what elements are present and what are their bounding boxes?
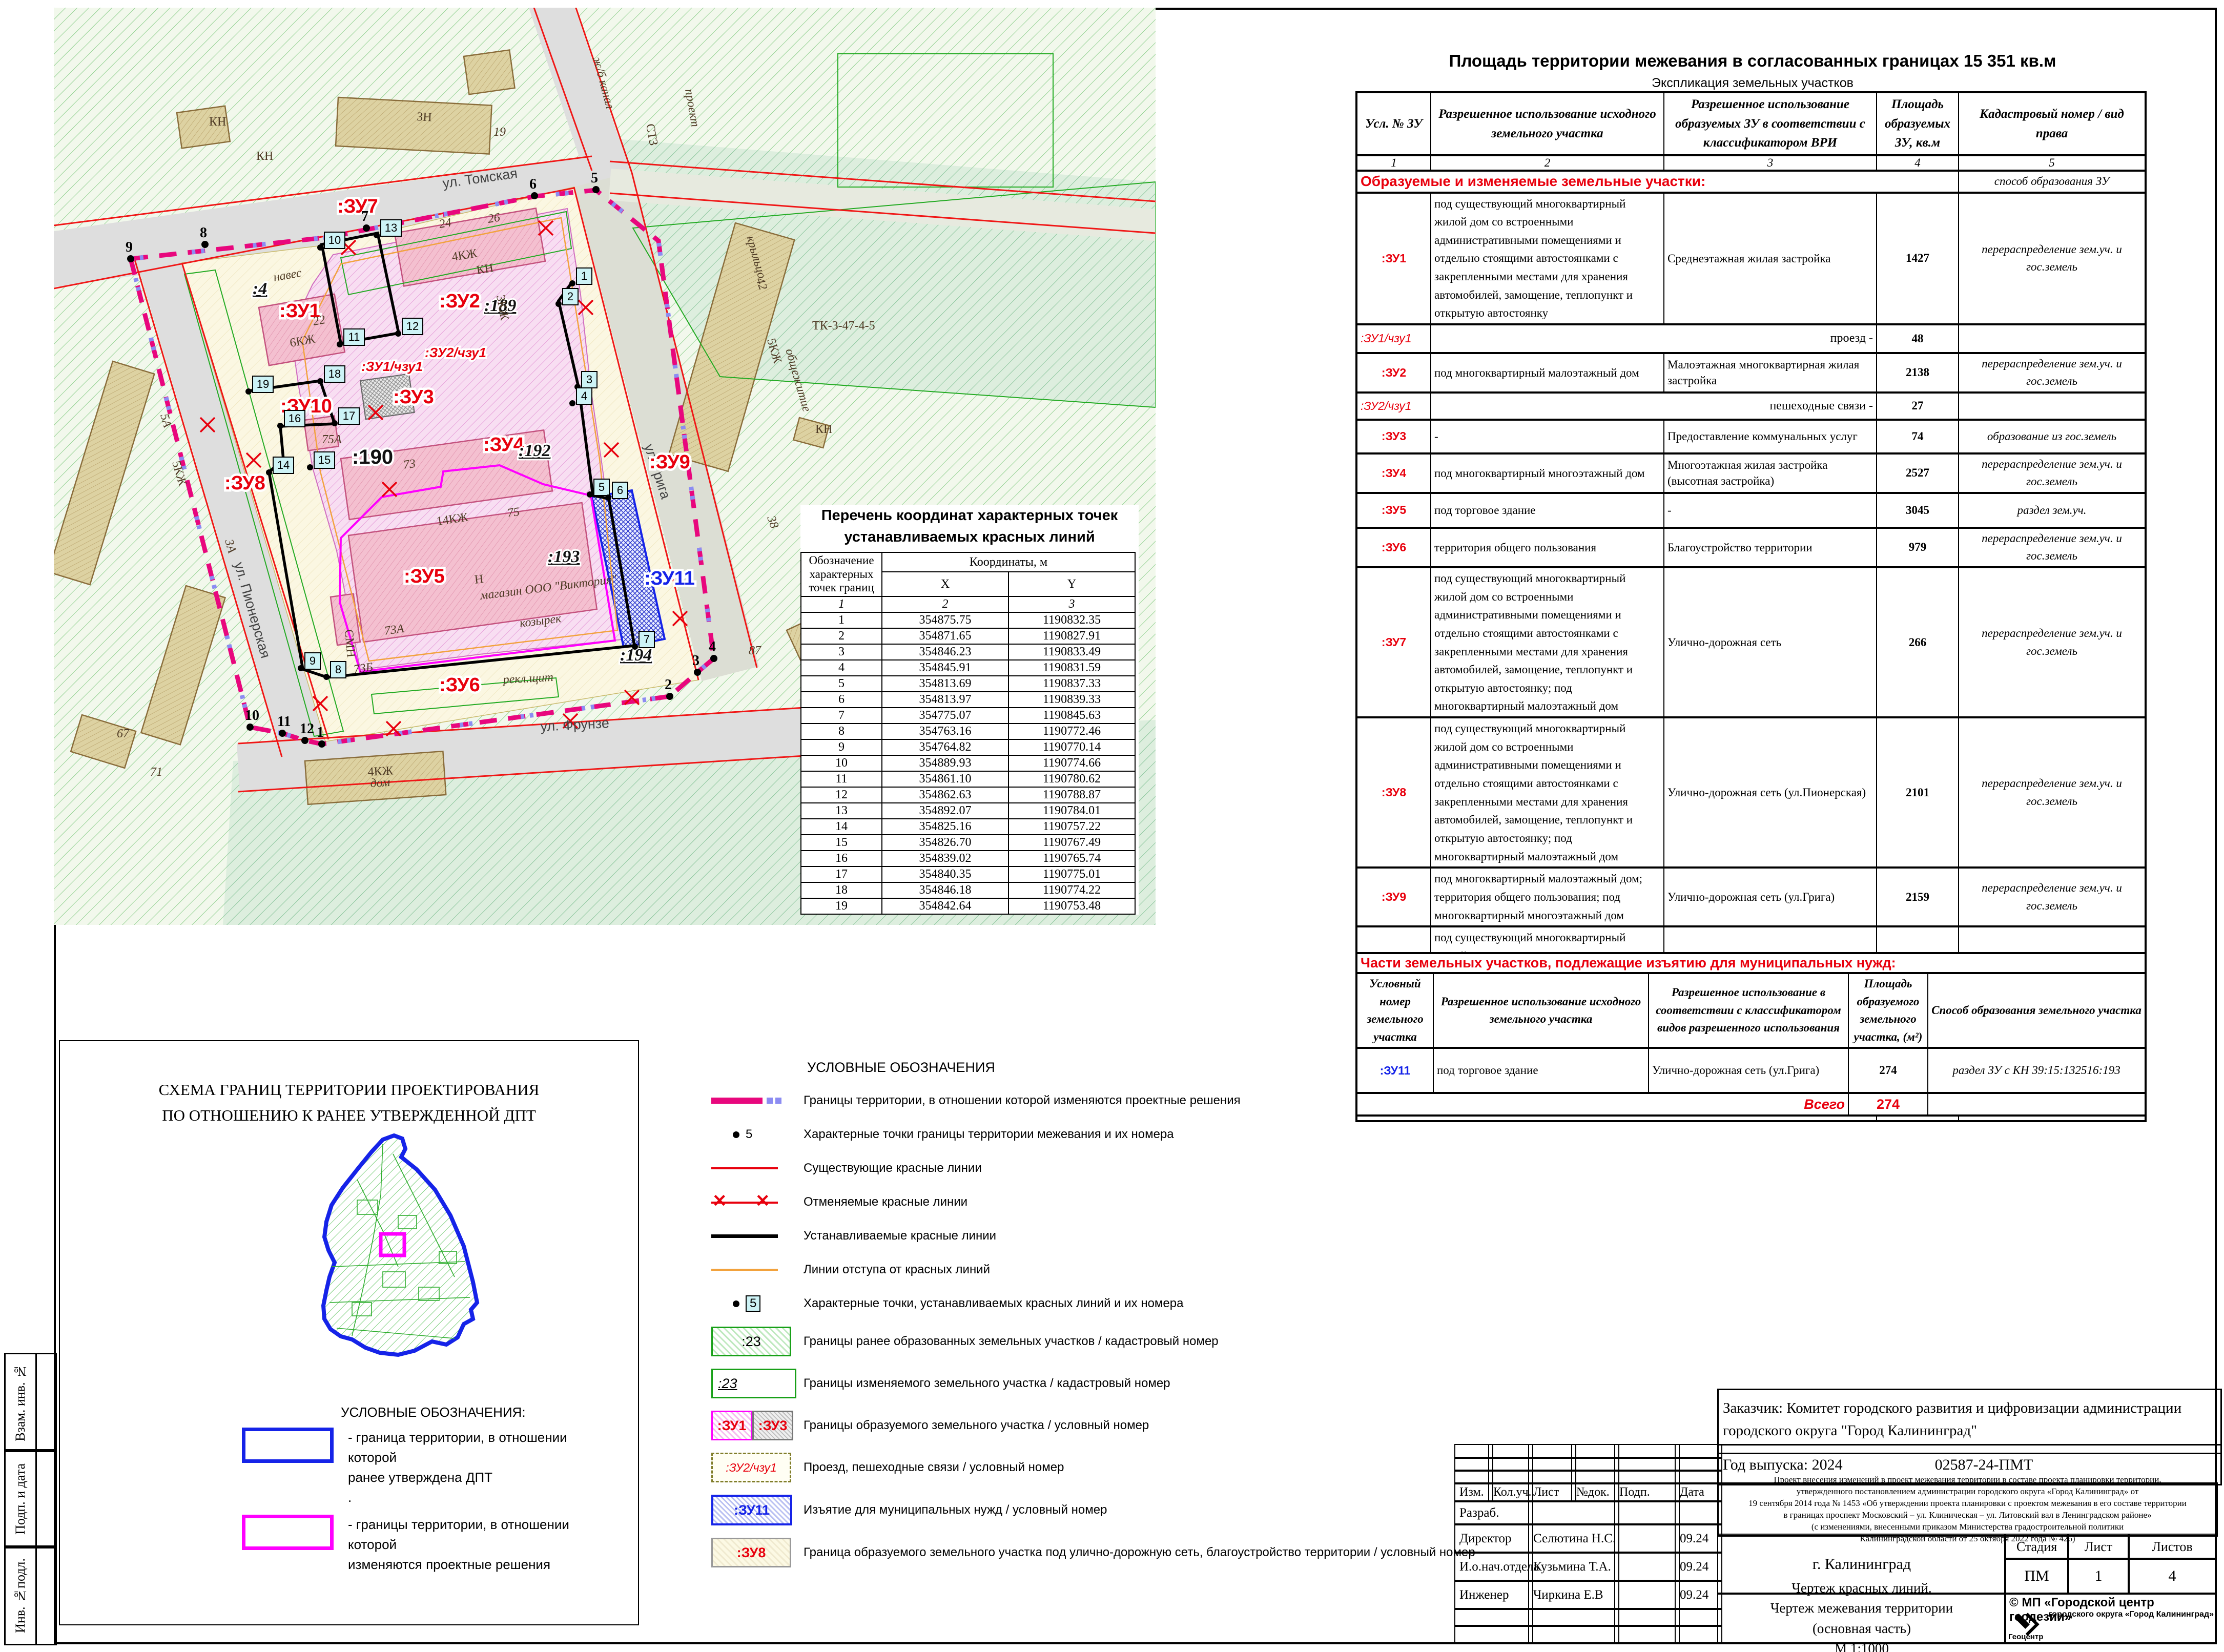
svg-text:5: 5 [591, 170, 598, 186]
coords-table: Обозначение характерных точек границКоор… [800, 552, 1136, 915]
expl-colnum-row: 12345 [1356, 155, 2146, 171]
stamp-empty-cell [1675, 1608, 1722, 1627]
expl-header-4: Площадь образуемых ЗУ, кв.м [1877, 92, 1959, 155]
legend-item-text: Проезд, пешеходные связи / условный номе… [804, 1460, 1064, 1475]
expl-row-ЗУ2: :ЗУ2под многоквартирный малоэтажный домМ… [1356, 353, 2146, 393]
schema-dot: . [348, 1490, 352, 1505]
expl-header-5: Кадастровый номер / вид права [1959, 92, 2146, 155]
svg-text:13: 13 [385, 221, 397, 234]
map-label: :ЗУ3 [393, 386, 434, 408]
svg-text:3: 3 [692, 653, 699, 669]
map-label: 67 [117, 727, 130, 740]
legend-item-yellowbox: :ЗУ8Граница образуемого земельного участ… [711, 1538, 1552, 1567]
map-label: 75А [322, 433, 342, 446]
person-role: Директор [1454, 1523, 1533, 1554]
map-label: ТК-3-47-4-5 [812, 319, 875, 333]
seiz-title-row: Части земельных участков, подлежащие изъ… [1356, 953, 2146, 973]
svg-text:11: 11 [277, 714, 291, 730]
svg-text:19: 19 [257, 378, 269, 390]
svg-text:15: 15 [318, 453, 331, 466]
blackline-icon [711, 1234, 804, 1238]
coords-title-1: Перечень координат характерных точек [821, 507, 1118, 524]
svg-text:1: 1 [317, 725, 324, 740]
legend-item-text: Границы образуемого земельного участка /… [804, 1418, 1149, 1433]
schema-swatch-blue [242, 1428, 334, 1463]
stamp-col-4: №док. [1571, 1482, 1619, 1502]
map-label: :190 [352, 446, 393, 468]
coord-point-1: 1354875.751190832.35 [801, 612, 1135, 628]
org-line2: городского округа «Город Калининград» [2049, 1610, 2214, 1619]
map-label: СМН [342, 629, 358, 658]
svg-text:17: 17 [343, 409, 355, 422]
chzubox-icon: :ЗУ2/чзу1 [711, 1453, 804, 1482]
coord-point-18: 18354846.181190774.22 [801, 882, 1135, 898]
map-label: рекл.щит [502, 671, 554, 687]
svg-text:2: 2 [567, 290, 573, 303]
map-label: :ЗУ9 [649, 451, 690, 473]
map-label: 75 [506, 505, 520, 520]
map-label: КН [815, 423, 832, 436]
sidebar-inv: Инв. №подл. [4, 1545, 57, 1645]
legend-item-text: Границы изменяемого земельного участка /… [804, 1376, 1170, 1391]
map-label: :192 [519, 441, 550, 460]
person-date: 09.24 [1675, 1580, 1722, 1610]
expl-subtitle: Экспликация земельных участков [1358, 76, 2147, 91]
legend-item-zupair: :ЗУ1:ЗУ3Границы образуемого земельного у… [711, 1411, 1552, 1440]
svg-text:9: 9 [310, 654, 316, 667]
person-date [1675, 1500, 1722, 1525]
gbox-icon: :23 [711, 1369, 804, 1398]
svg-text:8: 8 [200, 225, 207, 241]
map-label: 22 [312, 313, 326, 328]
svg-text:12: 12 [406, 320, 419, 333]
expl-row-ЗУ6: :ЗУ6территория общего пользованияБлагоус… [1356, 528, 2146, 567]
schema-legend-title: УСЛОВНЫЕ ОБОЗНАЧЕНИЯ: [341, 1402, 611, 1422]
legend-item-redx: ✕✕Отменяемые красные линии [711, 1191, 1552, 1213]
coords-block: Перечень координат характерных точек уст… [800, 505, 1139, 915]
legend-item-text: Границы ранее образованных земельных уча… [804, 1334, 1219, 1349]
svg-text:3: 3 [586, 373, 592, 386]
expl-row-ЗУ2чзу1: :ЗУ2/чзу1пешеходные связи -27 [1356, 393, 2146, 420]
svg-text:1: 1 [581, 270, 587, 282]
orangeline-icon [711, 1269, 804, 1271]
map-label: КН [209, 115, 226, 129]
coord-point-4: 4354845.911190831.59 [801, 660, 1135, 676]
map-label: :ЗУ2/чзу1 [425, 345, 486, 360]
stamp-col-1: Изм. [1454, 1482, 1493, 1502]
ptcyan-icon: 5 [711, 1295, 804, 1312]
person-role: Разраб. [1454, 1500, 1533, 1525]
svg-text:16: 16 [289, 412, 301, 425]
sheet-label-cell: Лист [2067, 1534, 2130, 1560]
legend-item-pt: 5Характерные точки границы территории ме… [711, 1124, 1552, 1145]
map-label: :ЗУ7 [337, 196, 378, 217]
legend-item-text: Линии отступа от красных линий [804, 1263, 990, 1277]
map-label: КН [476, 261, 495, 277]
svg-text:4: 4 [581, 389, 587, 402]
person-date: 09.24 [1675, 1523, 1722, 1554]
city: г. Калининград [1813, 1556, 1911, 1573]
stage-label-cell: Стадия [2004, 1534, 2069, 1560]
coord-point-9: 9354764.821190770.14 [801, 739, 1135, 755]
schema-item1-line2: ранее утверждена ДПТ [348, 1470, 492, 1485]
coord-point-7: 7354775.071190845.63 [801, 708, 1135, 724]
person-name: Чиркина Е.В [1528, 1580, 1619, 1610]
customer-line1: Заказчик: Комитет городского развития и … [1723, 1400, 2181, 1416]
map-label: 19 [493, 126, 506, 139]
redx-icon: ✕✕ [711, 1194, 804, 1210]
year-label: Год выпуска: 2024 [1723, 1456, 1843, 1474]
expl-row-ЗУ7: :ЗУ7под существующий многоквартирный жил… [1356, 567, 2146, 717]
map-label: :ЗУ1/чзу1 [361, 359, 423, 374]
yellowbox-icon: :ЗУ8 [711, 1538, 804, 1567]
bluebox-icon: :ЗУ11 [711, 1495, 804, 1525]
expl-header-row: Усл. № ЗУРазрешенное использование исход… [1356, 92, 2146, 155]
coord-point-16: 16354839.021190765.74 [801, 851, 1135, 866]
svg-text:4: 4 [709, 639, 716, 655]
zupair-icon: :ЗУ1:ЗУ3 [711, 1411, 804, 1440]
person-name [1528, 1500, 1619, 1525]
map-label: 73А [383, 622, 405, 638]
svg-text:6: 6 [529, 176, 537, 192]
map-label: 26 [487, 211, 501, 225]
legend-item-text: Устанавливаемые красные линии [804, 1229, 996, 1243]
legend-item-redline: Существующие красные линии [711, 1158, 1552, 1179]
svg-text:10: 10 [328, 234, 341, 246]
legend-item-text: Существующие красные линии [804, 1161, 982, 1175]
legend-item-ghatch: :23Границы ранее образованных земельных … [711, 1327, 1552, 1356]
coord-point-17: 17354840.351190775.01 [801, 866, 1135, 882]
expl-row-ЗУ5: :ЗУ5под торговое здание-3045раздел зем.у… [1356, 493, 2146, 528]
map-label: :4 [253, 279, 267, 298]
coord-point-13: 13354892.071190784.01 [801, 803, 1135, 819]
schema-panel: СХЕМА ГРАНИЦ ТЕРРИТОРИИ ПРОЕКТИРОВАНИЯ П… [59, 1040, 639, 1625]
expl-row-ЗУ8: :ЗУ8под существующий многоквартирный жил… [1356, 717, 2146, 868]
stamp-empty-cell [1614, 1625, 1680, 1644]
svg-text:18: 18 [328, 367, 341, 380]
stamp-col-2: Кол.уч. [1488, 1482, 1533, 1502]
coord-header-row1: Обозначение характерных точек границКоор… [801, 552, 1135, 572]
map-label: ЗН [417, 110, 433, 125]
legend-item-text: Отменяемые красные линии [804, 1195, 967, 1209]
sheet: ул. Томскаяул. Пионерскаяул. Григаул. Фр… [0, 0, 2224, 1652]
stamp-col-5: Подп. [1614, 1482, 1680, 1502]
coord-colnum-row: 123 [801, 596, 1135, 612]
sheet-value-cell: 1 [2067, 1558, 2130, 1595]
svg-text:6: 6 [617, 484, 623, 497]
person-date: 09.24 [1675, 1552, 1722, 1582]
sidebar-vzam: Взам. инв. № [4, 1353, 57, 1452]
stamp-col-3: Лист [1528, 1482, 1576, 1502]
person-role: И.о.нач.отдела [1454, 1552, 1533, 1582]
svg-text:7: 7 [361, 209, 368, 224]
magdash-icon [711, 1098, 804, 1104]
person-signature [1614, 1523, 1680, 1554]
seiz-header-row: Условный номер земельного участкаРазреше… [1356, 973, 2146, 1048]
coord-point-5: 5354813.691190837.33 [801, 676, 1135, 692]
map-label: :ЗУ6 [439, 674, 480, 696]
map-label: 73 [402, 457, 416, 472]
svg-text:14: 14 [277, 459, 290, 471]
coord-point-2: 2354871.651190827.91 [801, 628, 1135, 644]
schema-title-2: ПО ОТНОШЕНИЮ К РАНЕЕ УТВЕРЖДЕННОЙ ДПТ [162, 1106, 536, 1124]
sheets-value-cell: 4 [2128, 1558, 2217, 1595]
svg-text:10: 10 [245, 708, 259, 724]
map-label: :ЗУ4 [483, 434, 524, 456]
person-signature [1614, 1580, 1680, 1610]
expl-row-ЗУ9: :ЗУ9под многоквартирный малоэтажный дом;… [1356, 868, 2146, 926]
svg-text:9: 9 [126, 239, 133, 255]
coord-point-19: 19354842.641190753.48 [801, 898, 1135, 914]
person-name: Селютина Н.С. [1528, 1523, 1619, 1554]
legend-item-text: Изъятие для муниципальных нужд / условны… [804, 1503, 1107, 1517]
legend-item-orangeline: Линии отступа от красных линий [711, 1259, 1552, 1281]
logo-caption: Геоцентр [2008, 1633, 2043, 1641]
stamp-empty-cell [1614, 1608, 1680, 1627]
expl-row-ЗУ4: :ЗУ4под многоквартирный многоэтажный дом… [1356, 453, 2146, 493]
redline-icon [711, 1167, 804, 1169]
expl-header-1: Усл. № ЗУ [1356, 92, 1431, 155]
map-label: КН [256, 150, 273, 163]
svg-text:2: 2 [665, 677, 672, 693]
coord-point-10: 10354889.931190774.66 [801, 755, 1135, 771]
svg-text:11: 11 [348, 331, 360, 343]
map-label: Н [474, 572, 484, 587]
person-role: Инженер [1454, 1580, 1533, 1610]
stamp-empty-cell [1675, 1625, 1722, 1644]
stamp-empty-cell [1454, 1625, 1533, 1644]
coord-point-11: 11354861.101190780.62 [801, 771, 1135, 787]
person-signature [1614, 1500, 1680, 1525]
coord-point-3: 3354846.231190833.49 [801, 644, 1135, 660]
legend-title: УСЛОВНЫЕ ОБОЗНАЧЕНИЯ [807, 1060, 1552, 1076]
stage-value-cell: ПМ [2004, 1558, 2069, 1595]
pt-icon: 5 [711, 1127, 804, 1142]
map-label: 87 [749, 644, 761, 657]
schema-map [229, 1133, 516, 1400]
stamp-empty-cell [1528, 1625, 1619, 1644]
doc-number: 02587-24-ПМТ [1935, 1456, 2033, 1474]
schema-item1-line1: - граница территории, в отношении которо… [348, 1430, 567, 1465]
coords-title-2: устанавливаемых красных линий [844, 529, 1095, 545]
expl-section-row: Образуемые и изменяемые земельные участк… [1356, 171, 2146, 193]
map-label: :ЗУ8 [224, 472, 265, 494]
schema-swatch-magenta [242, 1515, 334, 1550]
legend-item-bluebox: :ЗУ11Изъятие для муниципальных нужд / ус… [711, 1495, 1552, 1525]
legend-item-ptcyan: 5Характерные точки, устанавливаемых крас… [711, 1293, 1552, 1314]
map-label: 73Б [353, 660, 374, 676]
legend-item-text: Характерные точки, устанавливаемых красн… [804, 1296, 1183, 1311]
coord-point-12: 12354862.631190788.87 [801, 787, 1135, 803]
legend-item-chzubox: :ЗУ2/чзу1Проезд, пешеходные связи / усло… [711, 1453, 1552, 1482]
coord-point-8: 8354763.161190772.46 [801, 724, 1135, 739]
coord-point-14: 14354825.161190757.22 [801, 819, 1135, 835]
expl-header-3: Разрешенное использование образуемых ЗУ … [1664, 92, 1877, 155]
map-label: :ЗУ2 [439, 291, 480, 312]
ghatch-icon: :23 [711, 1327, 804, 1356]
svg-text:7: 7 [644, 633, 650, 646]
person-name: Кузьмина Т.А. [1528, 1552, 1619, 1582]
svg-text:5: 5 [599, 481, 605, 493]
svg-text:8: 8 [335, 663, 341, 676]
stamp-empty-cell [1454, 1608, 1533, 1627]
svg-text:12: 12 [300, 721, 314, 737]
expl-row-ЗУ1: :ЗУ1под существующий многоквартирный жил… [1356, 193, 2146, 324]
map-label: :ЗУ11 [644, 568, 695, 589]
schema-item2-line2: изменяются проектные решения [348, 1557, 550, 1572]
legend-item-gbox: :23Границы изменяемого земельного участк… [711, 1369, 1552, 1398]
schema-item2-line1: - границы территории, в отношении которо… [348, 1517, 569, 1552]
map-label: 24 [438, 216, 452, 231]
legend-item-blackline: Устанавливаемые красные линии [711, 1225, 1552, 1247]
sidebar-podp: Подп. и дата [4, 1449, 57, 1548]
sheets-label-cell: Листов [2128, 1534, 2217, 1560]
legend-item-text: Характерные точки границы территории меж… [804, 1127, 1174, 1142]
schema-title-1: СХЕМА ГРАНИЦ ТЕРРИТОРИИ ПРОЕКТИРОВАНИЯ [159, 1081, 540, 1099]
drawing-name: Чертеж красных линий.Чертеж межевания те… [1770, 1578, 1953, 1652]
geocentr-logo-icon [2012, 1611, 2035, 1634]
person-signature [1614, 1552, 1680, 1582]
coord-point-6: 6354813.971190839.33 [801, 692, 1135, 708]
stamp-col-6: Дата [1675, 1482, 1722, 1502]
stamp-empty-cell [1528, 1608, 1619, 1627]
map-label: 71 [150, 766, 162, 779]
expl-header-2: Разрешенное использование исходного земе… [1431, 92, 1664, 155]
map-label: дом [370, 776, 390, 790]
legend: УСЛОВНЫЕ ОБОЗНАЧЕНИЯ Границы территории,… [711, 1060, 1552, 1580]
customer-line2: городского округа "Город Калининград" [1723, 1422, 1977, 1439]
legend-item-text: Границы территории, в отношении которой … [804, 1093, 1241, 1108]
legend-item-magdash: Границы территории, в отношении которой … [711, 1090, 1552, 1111]
coord-point-15: 15354826.701190767.49 [801, 835, 1135, 851]
map-label: :193 [548, 547, 580, 566]
expl-row-ЗУ3: :ЗУ3-Предоставление коммунальных услуг74… [1356, 420, 2146, 453]
expl-row-ЗУ1чзу1: :ЗУ1/чзу1проезд -48 [1356, 324, 2146, 353]
map-label: :ЗУ5 [404, 566, 445, 587]
legend-item-text: Граница образуемого земельного участка п… [804, 1545, 1475, 1560]
expl-title: Площадь территории межевания в согласова… [1358, 51, 2147, 71]
